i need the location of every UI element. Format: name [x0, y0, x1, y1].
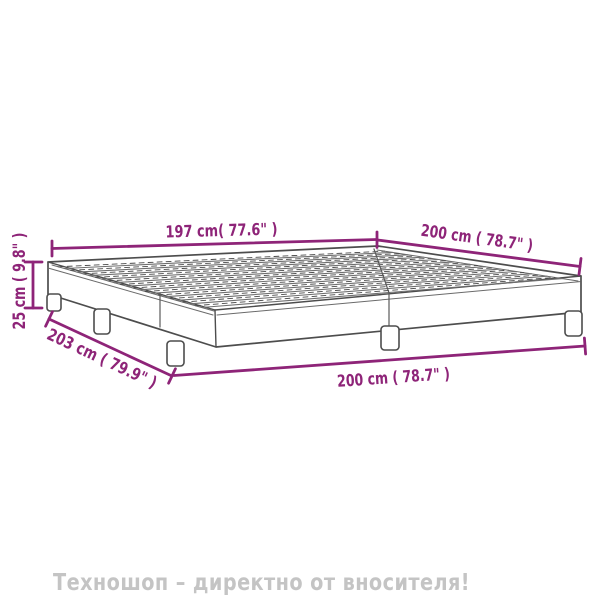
bed-leg	[167, 341, 184, 366]
dimension-width-front-label: 200 cm ( 78.7" )	[336, 364, 450, 391]
bed-leg	[565, 311, 582, 336]
dimension-line	[52, 240, 377, 249]
product-dimension-image: 197 cm( 77.6" ) 200 cm ( 78.7" ) 25 cm (…	[0, 0, 600, 600]
bed-leg	[47, 294, 61, 311]
bed-leg	[381, 326, 399, 350]
dimension-height-label: 25 cm ( 9.8" )	[10, 233, 29, 330]
dimension-cap	[579, 259, 581, 275]
dimension-length-top-label: 200 cm ( 78.7" )	[420, 221, 535, 256]
dimension-slat-width-label: 197 cm( 77.6" )	[165, 220, 277, 242]
watermark-text: Техношоп – директно от вносителя!	[53, 570, 470, 596]
bed-frame-drawing	[47, 246, 582, 366]
dimension-height: 25 cm ( 9.8" )	[10, 233, 42, 330]
bed-leg	[94, 309, 110, 334]
dimension-cap	[584, 338, 585, 354]
bed-frame-dimension-diagram: 197 cm( 77.6" ) 200 cm ( 78.7" ) 25 cm (…	[0, 0, 600, 600]
dimension-length-side-label: 203 cm ( 79.9" )	[44, 325, 160, 393]
